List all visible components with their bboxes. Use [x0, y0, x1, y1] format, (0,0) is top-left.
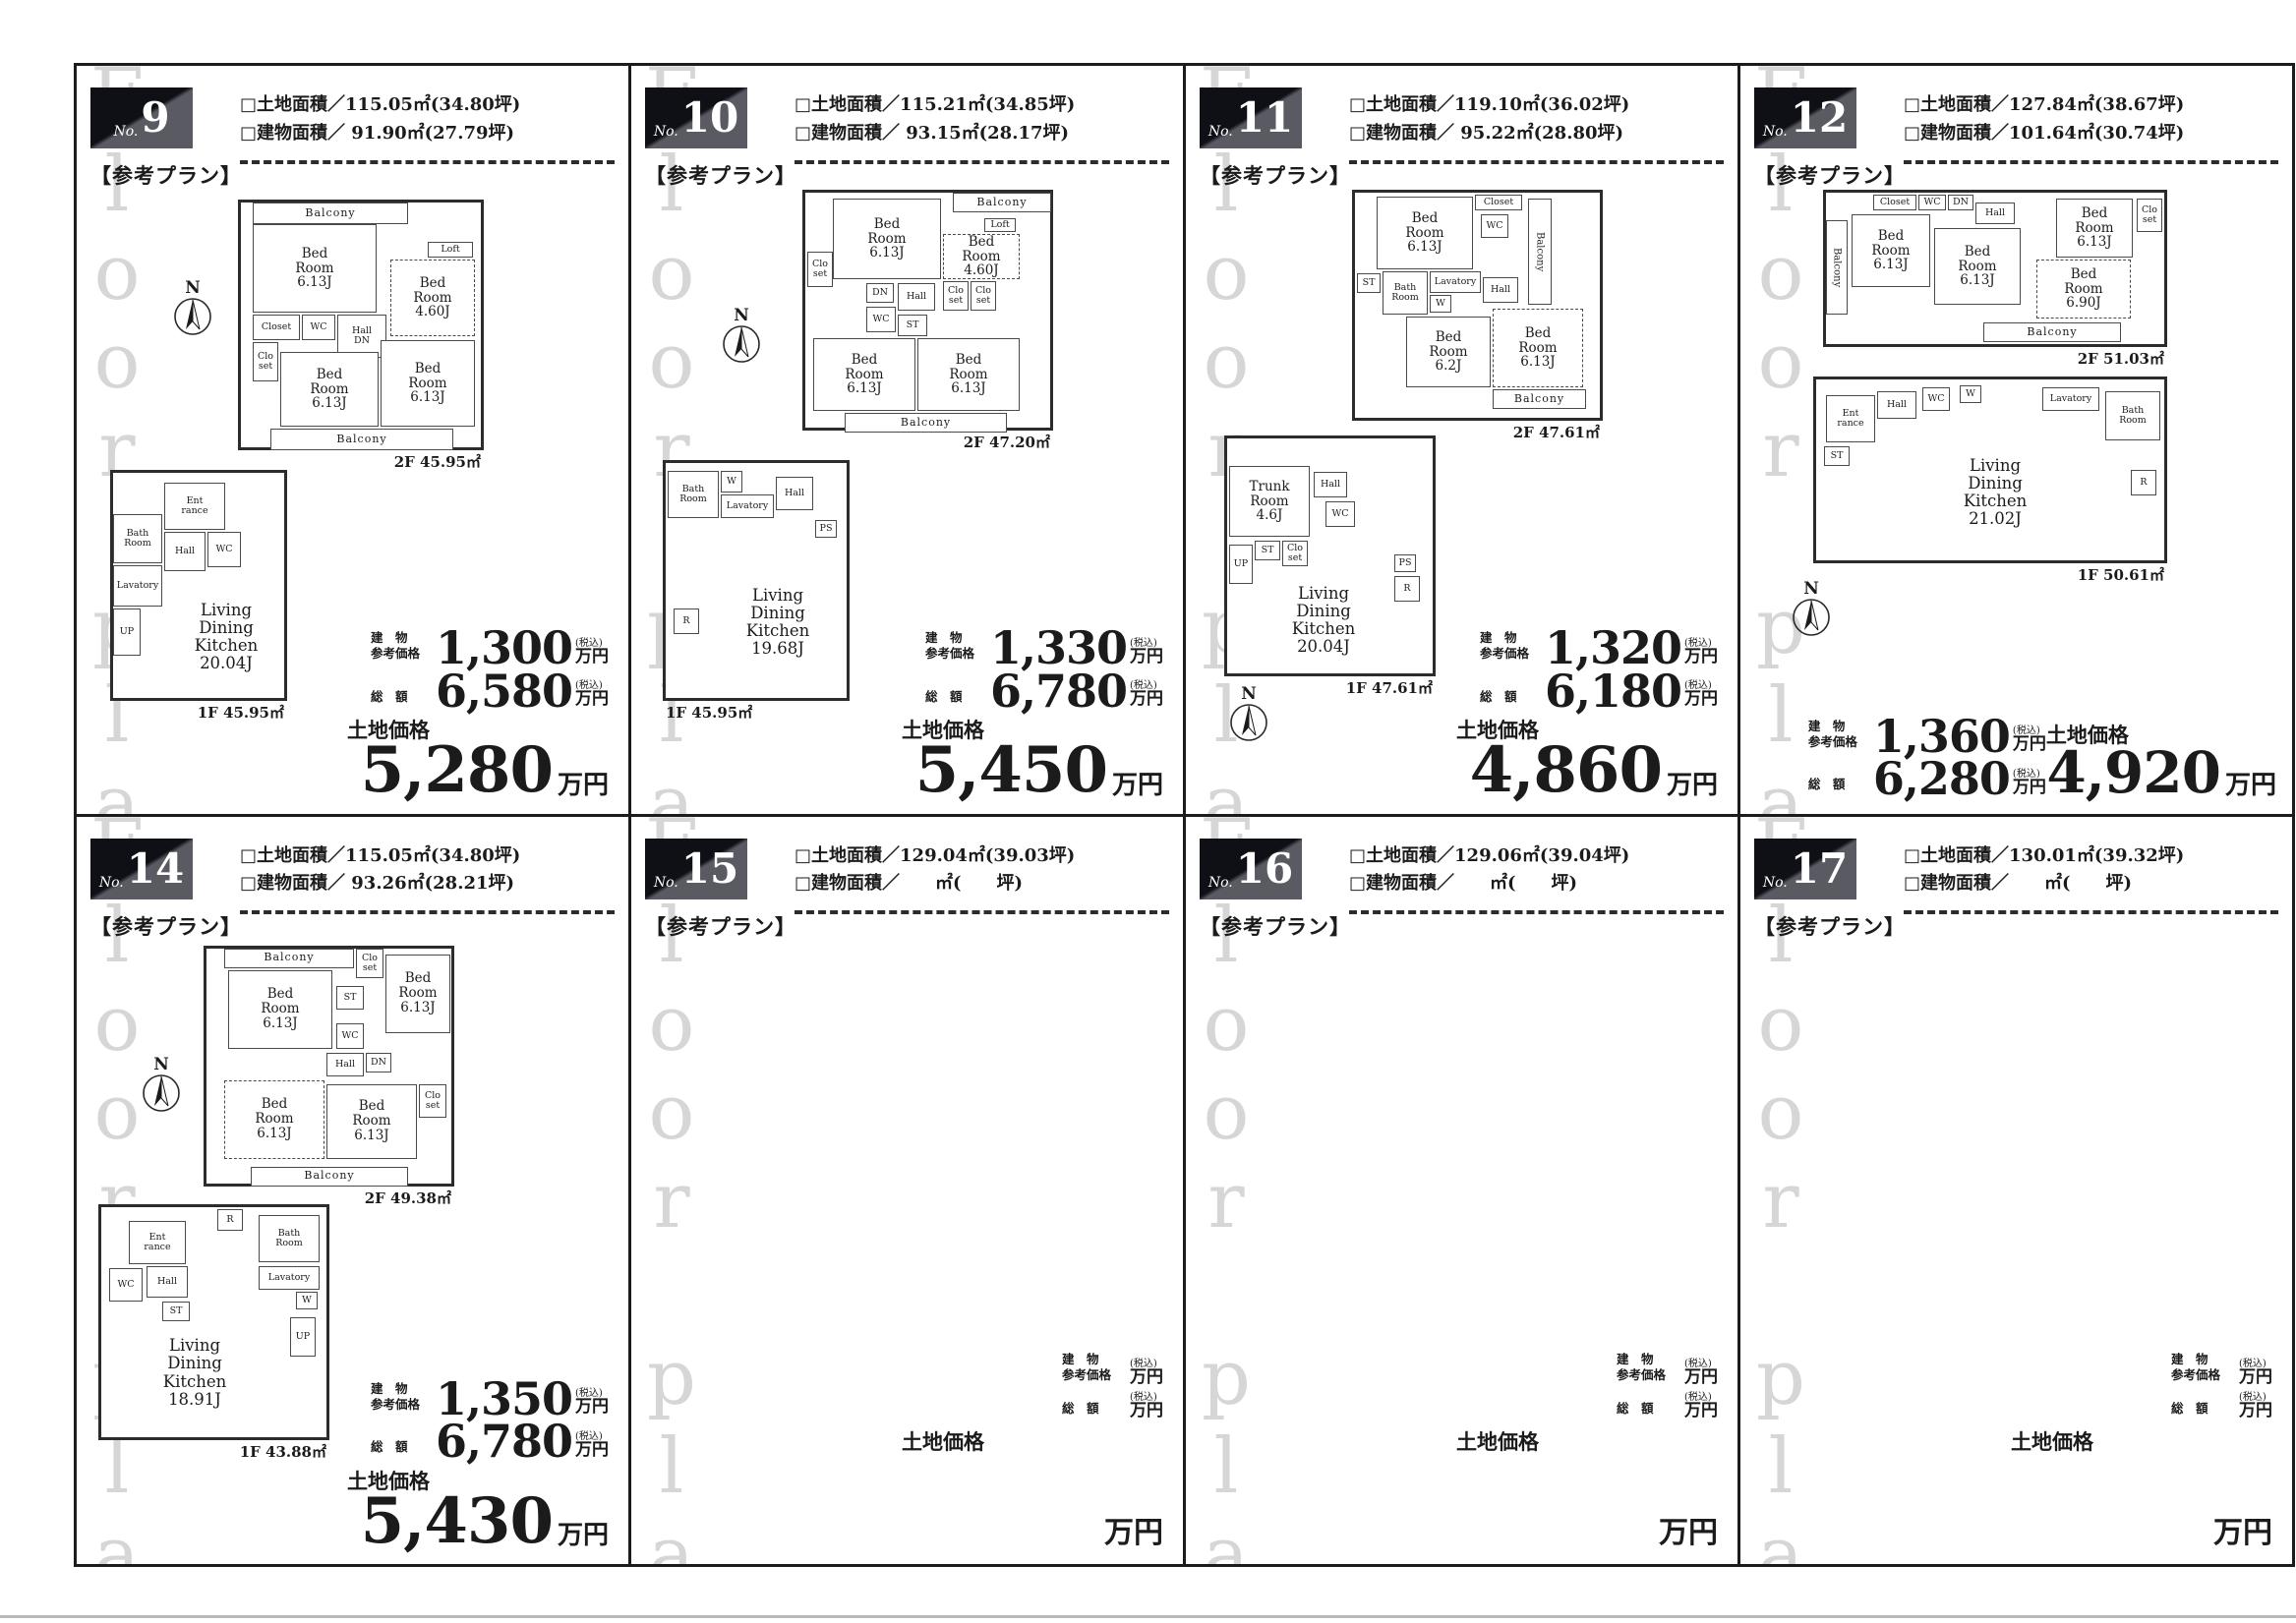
lot-number-badge: No.17 — [1754, 839, 1856, 899]
man-yen-unit: 万円 — [575, 649, 609, 667]
lot-number-prefix: No. — [113, 124, 138, 140]
total-price-row: 総 額6,780(税込)万円 — [347, 1421, 609, 1461]
man-yen-unit: 万円 — [1684, 1369, 1718, 1387]
north-compass-icon: N — [1227, 686, 1270, 746]
lot-number-badge: No.10 — [645, 87, 747, 148]
room: Clo set — [419, 1084, 446, 1118]
lot-number-prefix: No. — [1763, 124, 1788, 140]
land-price-unit: 万円 — [2213, 1519, 2272, 1548]
building-reference-price-row: 建 物 参考価格1,350(税込)万円 — [347, 1379, 609, 1419]
balcony-label: Balcony — [253, 203, 408, 224]
reference-plan-label: 【参考プラン】 — [645, 160, 795, 190]
lot-number-badge: No.15 — [645, 839, 747, 899]
lot-cell-no-15: Floor planNo.15【参考プラン】□土地面積／129.04㎡(39.0… — [631, 817, 1186, 1568]
floor-area-label: 2F 45.95㎡ — [394, 451, 481, 472]
land-area-line: □土地面積／115.21㎡(34.85坪) — [795, 91, 1169, 120]
lot-number: 17 — [1791, 848, 1848, 890]
room: Hall — [326, 1053, 364, 1076]
compass-needle-icon — [142, 1073, 181, 1113]
north-compass-icon: N — [140, 1057, 183, 1117]
land-price-label: 土地価格 — [2011, 1426, 2272, 1456]
price-unit: (税込)万円 — [575, 638, 609, 667]
room: PS — [815, 520, 837, 538]
building-area-line: □建物面積／ ㎡( 坪) — [795, 870, 1169, 898]
cell-header-left: No.17【参考プラン】 — [1754, 829, 1904, 941]
room: Lavatory — [259, 1266, 320, 1290]
flyer-sheet: Floor planNo.9【参考プラン】□土地面積／115.05㎡(34.80… — [0, 0, 2296, 1623]
price-unit: (税込)万円 — [1130, 638, 1163, 667]
land-price-unit: 万円 — [1112, 773, 1163, 798]
dotted-separator — [240, 910, 615, 914]
land-area-label: □土地面積／ — [240, 91, 345, 120]
total-price-label: 総 額 — [371, 1439, 436, 1455]
floor-plan-2f: BalconyBed Room 6.13JLoftBed Room 4.60JC… — [238, 200, 484, 450]
room: ST — [898, 315, 927, 336]
building-area-label: □建物面積／ — [795, 870, 900, 898]
room: Closet — [253, 315, 300, 340]
dotted-separator — [1904, 910, 2278, 914]
cell-header: No.10【参考プラン】□土地面積／115.21㎡(34.85坪)□建物面積／ … — [645, 78, 1169, 190]
floor-area-label: 1F 45.95㎡ — [198, 702, 284, 723]
land-price-unit: 万円 — [1659, 1519, 1718, 1548]
room: Clo set — [971, 281, 996, 311]
room: Clo set — [2137, 199, 2162, 232]
man-yen-unit: 万円 — [1684, 691, 1718, 709]
ldk-room: Living Dining Kitchen 20.04J — [164, 573, 288, 701]
price-block: 建 物 参考価格1,360(税込)万円総 額6,280(税込)万円土地価格4,9… — [1799, 716, 2276, 801]
building-reference-price-label: 建 物 参考価格 — [1062, 1352, 1127, 1384]
cell-header: No.12【参考プラン】□土地面積／127.84㎡(38.67坪)□建物面積／1… — [1754, 78, 2278, 190]
dotted-separator — [1904, 160, 2278, 164]
land-price-row: 4,920万円 — [2046, 749, 2276, 797]
lot-number: 12 — [1791, 97, 1848, 139]
reference-plan-label: 【参考プラン】 — [1200, 911, 1349, 941]
price-block: 建 物 参考価格(税込)万円総 額(税込)万円土地価格万円 — [1456, 1352, 1718, 1548]
total-price-label: 総 額 — [2171, 1401, 2236, 1417]
cell-header-right: □土地面積／130.01㎡(39.32坪)□建物面積／ ㎡( 坪) — [1904, 829, 2278, 941]
lot-number-prefix: No. — [99, 875, 124, 891]
building-area-line: □建物面積／ 95.22㎡(28.80坪) — [1349, 120, 1724, 148]
building-total-prices: 建 物 参考価格1,320(税込)万円総 額6,180(税込)万円 — [1456, 628, 1718, 711]
cell-header: No.17【参考プラン】□土地面積／130.01㎡(39.32坪)□建物面積／ … — [1754, 829, 2278, 941]
reference-plan-label: 【参考プラン】 — [90, 911, 240, 941]
room: Clo set — [943, 281, 969, 311]
building-area-value: 93.26㎡(28.21坪) — [345, 870, 514, 898]
room: WC — [1918, 195, 1946, 210]
land-price-unit: 万円 — [558, 1523, 609, 1548]
building-reference-price-value: 1,350 — [436, 1379, 572, 1419]
room: R — [1394, 576, 1420, 602]
lot-number: 14 — [127, 848, 184, 890]
building-area-value: ㎡( 坪) — [900, 870, 1023, 898]
total-price-value: 6,580 — [436, 671, 572, 711]
price-unit: (税込)万円 — [1684, 638, 1718, 667]
room: UP — [1229, 545, 1253, 584]
building-reference-price-row: 建 物 参考価格(税込)万円 — [902, 1352, 1163, 1390]
compass-needle-icon — [1792, 598, 1831, 637]
room: WC — [109, 1268, 143, 1302]
land-price-value: 5,450 — [915, 744, 1107, 797]
total-price-row: 総 額6,780(税込)万円 — [902, 671, 1163, 711]
building-total-prices: 建 物 参考価格1,330(税込)万円総 額6,780(税込)万円 — [902, 628, 1163, 711]
north-label: N — [171, 280, 214, 297]
building-area-line: □建物面積／ 93.15㎡(28.17坪) — [795, 120, 1169, 148]
ldk-room: Living Dining Kitchen 19.68J — [713, 553, 843, 691]
room: Closet — [1873, 195, 1916, 210]
room: Ent rance — [164, 483, 225, 530]
lot-number-badge: No.14 — [90, 839, 193, 899]
dotted-separator — [240, 160, 615, 164]
cell-header: No.16【参考プラン】□土地面積／129.06㎡(39.04坪)□建物面積／ … — [1200, 829, 1724, 941]
building-area-value: 101.64㎡(30.74坪) — [2009, 120, 2184, 148]
building-total-prices: 建 物 参考価格1,350(税込)万円総 額6,780(税込)万円 — [347, 1379, 609, 1462]
room: PS — [1394, 554, 1416, 572]
total-price-value: 6,780 — [436, 1421, 572, 1461]
lot-cell-no-16: Floor planNo.16【参考プラン】□土地面積／129.06㎡(39.0… — [1186, 817, 1740, 1568]
lot-number: 10 — [681, 97, 738, 139]
building-area-line: □建物面積／ 93.26㎡(28.21坪) — [240, 870, 615, 898]
balcony-label: Balcony — [1826, 220, 1848, 315]
room: Hall — [164, 532, 206, 571]
room: W — [721, 471, 742, 493]
room: Ent rance — [129, 1221, 186, 1264]
plan-zone: ClosetWCDNHallBalconyBed Room 6.13JBed R… — [1754, 190, 2278, 806]
lot-number-prefix: No. — [1763, 875, 1788, 891]
floor-area-label: 1F 43.88㎡ — [240, 1441, 326, 1462]
room: Hall — [147, 1266, 188, 1298]
price-unit: (税込)万円 — [1130, 1359, 1163, 1387]
room: Bed Room 6.13J — [1377, 197, 1473, 269]
total-price-row: 総 額6,180(税込)万円 — [1456, 671, 1718, 711]
room: Hall — [1877, 391, 1916, 419]
room: WC — [1325, 501, 1355, 527]
room: R — [217, 1209, 243, 1231]
building-area-line: □建物面積／ ㎡( 坪) — [1349, 870, 1724, 898]
man-yen-unit: 万円 — [1130, 1403, 1163, 1420]
land-area-line: □土地面積／127.84㎡(38.67坪) — [1904, 91, 2278, 120]
plan-zone: 建 物 参考価格(税込)万円総 額(税込)万円土地価格万円 — [645, 941, 1169, 1557]
building-total-prices: 建 物 参考価格(税込)万円総 額(税込)万円 — [902, 1352, 1163, 1422]
land-area-line: □土地面積／129.06㎡(39.04坪) — [1349, 842, 1724, 871]
lot-number-badge: No.9 — [90, 87, 193, 148]
lot-cell-no-14: Floor planNo.14【参考プラン】□土地面積／115.05㎡(34.8… — [77, 817, 631, 1568]
land-price-row: 4,860万円 — [1456, 744, 1718, 797]
dotted-separator — [795, 160, 1169, 164]
total-price-value: 6,780 — [990, 671, 1127, 711]
building-reference-price-label: 建 物 参考価格 — [1808, 719, 1873, 751]
man-yen-unit: 万円 — [1684, 1403, 1718, 1420]
floor-area-label: 2F 47.61㎡ — [1513, 422, 1600, 442]
reference-plan-label: 【参考プラン】 — [1754, 911, 1904, 941]
floor-plan-2f: Bed Room 6.13JClosetWCBalconySTBath Room… — [1352, 190, 1603, 421]
room: Hall — [1975, 203, 2015, 224]
floor-plan-2f: ClosetWCDNHallBalconyBed Room 6.13JBed R… — [1823, 190, 2167, 347]
price-unit: (税込)万円 — [1684, 1392, 1718, 1420]
room: Bed Room 6.13J — [228, 970, 332, 1049]
building-reference-price-label: 建 物 参考価格 — [1480, 630, 1545, 663]
land-price-value: 5,280 — [361, 744, 553, 797]
price-block: 建 物 参考価格(税込)万円総 額(税込)万円土地価格万円 — [902, 1352, 1163, 1548]
balcony-label: Balcony — [251, 1167, 408, 1187]
lot-cell-no-9: Floor planNo.9【参考プラン】□土地面積／115.05㎡(34.80… — [77, 66, 631, 817]
cell-header: No.11【参考プラン】□土地面積／119.10㎡(36.02坪)□建物面積／ … — [1200, 78, 1724, 190]
north-label: N — [1790, 581, 1833, 598]
room: Hall — [776, 477, 813, 510]
room: Lavatory — [721, 494, 774, 518]
land-price-unit: 万円 — [2225, 773, 2276, 798]
price-unit: (税込)万円 — [1130, 680, 1163, 709]
cell-header-right: □土地面積／127.84㎡(38.67坪)□建物面積／101.64㎡(30.74… — [1904, 78, 2278, 190]
lot-cell-no-12: Floor planNo.12【参考プラン】□土地面積／127.84㎡(38.6… — [1740, 66, 2295, 817]
room: Bed Room 6.13J — [1852, 214, 1930, 287]
room: WC — [866, 307, 896, 332]
room: Bed Room 6.13J — [1934, 228, 2021, 305]
compass-needle-icon — [173, 297, 212, 336]
land-area-line: □土地面積／115.05㎡(34.80坪) — [240, 842, 615, 871]
lot-number-badge: No.11 — [1200, 87, 1302, 148]
land-price-value: 4,860 — [1470, 744, 1662, 797]
land-area-label: □土地面積／ — [1349, 91, 1454, 120]
price-unit: (税込)万円 — [1130, 1392, 1163, 1420]
plan-zone: BalconyClo setBed Room 6.13JBed Room 6.1… — [90, 941, 615, 1557]
land-price-row: 5,450万円 — [902, 744, 1163, 797]
room: DN — [366, 1053, 391, 1072]
price-unit: (税込)万円 — [1684, 680, 1718, 709]
man-yen-unit: 万円 — [1684, 649, 1718, 667]
building-area-value: 93.15㎡(28.17坪) — [900, 120, 1069, 148]
room: WC — [336, 1023, 364, 1049]
total-price-label: 総 額 — [1062, 1401, 1127, 1417]
land-area-label: □土地面積／ — [795, 91, 900, 120]
land-price-label: 土地価格 — [1456, 1426, 1718, 1456]
room: Hall — [1314, 472, 1347, 497]
room: DN — [866, 283, 894, 303]
building-area-label: □建物面積／ — [795, 120, 900, 148]
land-price-row: 万円 — [2011, 1519, 2272, 1548]
lot-number-prefix: No. — [654, 875, 678, 891]
room: Clo set — [807, 252, 833, 287]
room: Hall — [898, 283, 935, 311]
price-block: 建 物 参考価格(税込)万円総 額(税込)万円土地価格万円 — [2011, 1352, 2272, 1548]
building-reference-price-value: 1,360 — [1873, 717, 2010, 756]
total-price-row: 総 額6,280(税込)万円 — [1799, 759, 2046, 798]
price-block: 建 物 参考価格1,330(税込)万円総 額6,780(税込)万円土地価格5,4… — [902, 628, 1163, 797]
room: Clo set — [1282, 541, 1308, 566]
building-reference-price-label: 建 物 参考価格 — [925, 630, 990, 663]
room: Bath Room — [259, 1215, 320, 1262]
total-price-label: 総 額 — [1617, 1401, 1681, 1417]
room: Lavatory — [113, 565, 162, 607]
price-unit: (税込)万円 — [1684, 1359, 1718, 1387]
cell-header: No.9【参考プラン】□土地面積／115.05㎡(34.80坪)□建物面積／ 9… — [90, 78, 615, 190]
room: Lavatory — [1430, 271, 1481, 293]
building-area-label: □建物面積／ — [1349, 120, 1454, 148]
building-reference-price-row: 建 物 参考価格1,300(税込)万円 — [347, 628, 609, 667]
north-label: N — [1227, 686, 1270, 703]
lot-number-prefix: No. — [1208, 124, 1233, 140]
room: Bed Room 6.13J — [385, 955, 450, 1033]
total-price-value: 6,280 — [1873, 759, 2010, 798]
building-total-prices: 建 物 参考価格(税込)万円総 額(税込)万円 — [1456, 1352, 1718, 1422]
lot-number-prefix: No. — [654, 124, 678, 140]
man-yen-unit: 万円 — [2239, 1403, 2272, 1420]
balcony-label: Balcony — [270, 429, 453, 450]
price-unit: (税込)万円 — [2239, 1392, 2272, 1420]
room: W — [296, 1292, 318, 1309]
cell-header-right: □土地面積／129.04㎡(39.03坪)□建物面積／ ㎡( 坪) — [795, 829, 1169, 941]
price-right-column: 土地価格4,920万円 — [2046, 716, 2276, 801]
floor-area-label: 2F 47.20㎡ — [964, 432, 1050, 452]
price-left-column: 建 物 参考価格1,360(税込)万円総 額6,280(税込)万円 — [1799, 717, 2046, 802]
dotted-separator — [1349, 910, 1724, 914]
land-area-label: □土地面積／ — [1349, 842, 1454, 871]
room: WC — [1481, 214, 1508, 238]
land-area-value: 115.21㎡(34.85坪) — [900, 91, 1075, 120]
room: Clo set — [356, 949, 383, 978]
room: Trunk Room 4.6J — [1229, 466, 1310, 537]
room: Bath Room — [2105, 391, 2160, 440]
floor-plan-2f: BalconyClo setBed Room 6.13JBed Room 6.1… — [204, 946, 454, 1187]
building-area-value: ㎡( 坪) — [1454, 870, 1577, 898]
man-yen-unit: 万円 — [575, 1442, 609, 1460]
land-area-label: □土地面積／ — [1904, 91, 2009, 120]
building-reference-price-value: 1,320 — [1545, 628, 1681, 667]
room: Bed Room 6.13J — [381, 340, 475, 427]
cell-header-left: No.9【参考プラン】 — [90, 78, 240, 190]
land-area-value: 119.10㎡(36.02坪) — [1454, 91, 1629, 120]
floor-plan-grid: Floor planNo.9【参考プラン】□土地面積／115.05㎡(34.80… — [74, 63, 2295, 1567]
room: Bath Room — [1383, 271, 1428, 315]
man-yen-unit: 万円 — [2013, 780, 2046, 797]
room: Bath Room — [668, 471, 719, 518]
room: Clo set — [253, 342, 278, 381]
cell-header-left: No.11【参考プラン】 — [1200, 78, 1349, 190]
floor-area-label: 2F 49.38㎡ — [365, 1188, 451, 1208]
lot-number-badge: No.16 — [1200, 839, 1302, 899]
floor-area-label: 1F 50.61㎡ — [2078, 564, 2164, 585]
balcony-label: Balcony — [1528, 199, 1552, 305]
building-area-label: □建物面積／ — [240, 870, 345, 898]
lot-number: 16 — [1236, 848, 1293, 890]
room: W — [1430, 295, 1451, 313]
total-price-row: 総 額6,580(税込)万円 — [347, 671, 609, 711]
room: Bed Room 6.13J — [326, 1084, 417, 1159]
building-area-line: □建物面積／ ㎡( 坪) — [1904, 870, 2278, 898]
land-area-line: □土地面積／130.01㎡(39.32坪) — [1904, 842, 2278, 871]
building-reference-price-row: 建 物 参考価格1,320(税込)万円 — [1456, 628, 1718, 667]
cell-header-right: □土地面積／115.21㎡(34.85坪)□建物面積／ 93.15㎡(28.17… — [795, 78, 1169, 190]
building-total-prices: 建 物 参考価格1,360(税込)万円総 額6,280(税込)万円 — [1799, 717, 2046, 799]
total-price-label: 総 額 — [371, 689, 436, 705]
room: Hall — [1483, 277, 1518, 303]
land-price-value: 5,430 — [361, 1495, 553, 1548]
ldk-room: Living Dining Kitchen 18.91J — [121, 1311, 268, 1435]
floor-plan-1f: Trunk Room 4.6JHallWCSTClo setUPPSRLivin… — [1224, 435, 1436, 676]
total-price-row: 総 額(税込)万円 — [902, 1392, 1163, 1422]
reference-plan-label: 【参考プラン】 — [645, 911, 795, 941]
man-yen-unit: 万円 — [2239, 1369, 2272, 1387]
building-total-prices: 建 物 参考価格(税込)万円総 額(税込)万円 — [2011, 1352, 2272, 1422]
ldk-room: Living Dining Kitchen 21.02J — [1907, 435, 2084, 551]
lot-cell-no-10: Floor planNo.10【参考プラン】□土地面積／115.21㎡(34.8… — [631, 66, 1186, 817]
building-reference-price-row: 建 物 参考価格1,330(税込)万円 — [902, 628, 1163, 667]
land-area-label: □土地面積／ — [240, 842, 345, 871]
plan-zone: 建 物 参考価格(税込)万円総 額(税込)万円土地価格万円 — [1754, 941, 2278, 1557]
land-area-line: □土地面積／129.04㎡(39.03坪) — [795, 842, 1169, 871]
room: Loft — [428, 242, 473, 258]
plan-zone: BalconyBed Room 6.13JLoftBed Room 4.60JC… — [645, 190, 1169, 806]
room: DN — [1948, 195, 1973, 210]
plan-zone: 建 物 参考価格(税込)万円総 額(税込)万円土地価格万円 — [1200, 941, 1724, 1557]
building-reference-price-row: 建 物 参考価格(税込)万円 — [1456, 1352, 1718, 1390]
land-area-line: □土地面積／119.10㎡(36.02坪) — [1349, 91, 1724, 120]
land-price-row: 万円 — [1456, 1519, 1718, 1548]
north-compass-icon: N — [1790, 581, 1833, 641]
cell-header-right: □土地面積／115.05㎡(34.80坪)□建物面積／ 93.26㎡(28.21… — [240, 829, 615, 941]
price-unit: (税込)万円 — [575, 1431, 609, 1460]
building-area-label: □建物面積／ — [1904, 870, 2009, 898]
dotted-separator — [1349, 160, 1724, 164]
cell-header-left: No.12【参考プラン】 — [1754, 78, 1904, 190]
floor-plan-1f: Bath RoomWLavatoryHallPSRLiving Dining K… — [663, 460, 850, 701]
lot-number-badge: No.12 — [1754, 87, 1856, 148]
lot-cell-no-17: Floor planNo.17【参考プラン】□土地面積／130.01㎡(39.3… — [1740, 817, 2295, 1568]
land-area-value: 115.05㎡(34.80坪) — [345, 91, 520, 120]
building-reference-price-value: 1,330 — [990, 628, 1127, 667]
building-area-label: □建物面積／ — [1349, 870, 1454, 898]
land-area-line: □土地面積／115.05㎡(34.80坪) — [240, 91, 615, 120]
building-reference-price-row: 建 物 参考価格1,360(税込)万円 — [1799, 717, 2046, 756]
floor-plan-1f: Ent ranceHallSTWCWLavatoryBath RoomRLivi… — [1813, 377, 2167, 563]
building-total-prices: 建 物 参考価格1,300(税込)万円総 額6,580(税込)万円 — [347, 628, 609, 711]
ldk-room: Living Dining Kitchen 20.04J — [1259, 568, 1388, 672]
land-price-unit: 万円 — [558, 773, 609, 798]
land-price-unit: 万円 — [1667, 773, 1718, 798]
land-area-value: 130.01㎡(39.32坪) — [2009, 842, 2184, 871]
total-price-label: 総 額 — [1808, 777, 1873, 792]
room: W — [1960, 385, 1981, 403]
land-area-label: □土地面積／ — [795, 842, 900, 871]
lot-cell-no-11: Floor planNo.11【参考プラン】□土地面積／119.10㎡(36.0… — [1186, 66, 1740, 817]
room: ST — [1357, 273, 1381, 293]
lot-number: 11 — [1236, 97, 1293, 139]
building-area-label: □建物面積／ — [1904, 120, 2009, 148]
building-reference-price-label: 建 物 参考価格 — [371, 630, 436, 663]
land-price-value: 4,920 — [2046, 749, 2220, 797]
room: ST — [1824, 446, 1850, 466]
room: Bed Room 6.2J — [1406, 317, 1491, 387]
cell-header-left: No.15【参考プラン】 — [645, 829, 795, 941]
room: Bed Room 6.13J — [224, 1080, 324, 1159]
land-price-row: 5,280万円 — [347, 744, 609, 797]
land-area-value: 127.84㎡(38.67坪) — [2009, 91, 2184, 120]
price-unit: (税込)万円 — [2013, 725, 2046, 754]
room: Bed Room 6.13J — [2056, 199, 2133, 258]
total-price-label: 総 額 — [1480, 689, 1545, 705]
floor-area-label: 1F 45.95㎡ — [666, 702, 752, 723]
total-price-label: 総 額 — [925, 689, 990, 705]
room: ST — [1255, 541, 1280, 560]
floor-plan-1f: Bath RoomEnt ranceHallWCLavatoryUPLiving… — [110, 470, 287, 701]
balcony-label: Balcony — [1983, 322, 2121, 342]
room: Bed Room 6.13J — [833, 199, 941, 279]
man-yen-unit: 万円 — [1130, 649, 1163, 667]
balcony-label: Balcony — [224, 949, 354, 968]
north-compass-icon: N — [720, 308, 763, 368]
cell-header-right: □土地面積／119.10㎡(36.02坪)□建物面積／ 95.22㎡(28.80… — [1349, 78, 1724, 190]
building-reference-price-label: 建 物 参考価格 — [371, 1381, 436, 1414]
man-yen-unit: 万円 — [575, 691, 609, 709]
